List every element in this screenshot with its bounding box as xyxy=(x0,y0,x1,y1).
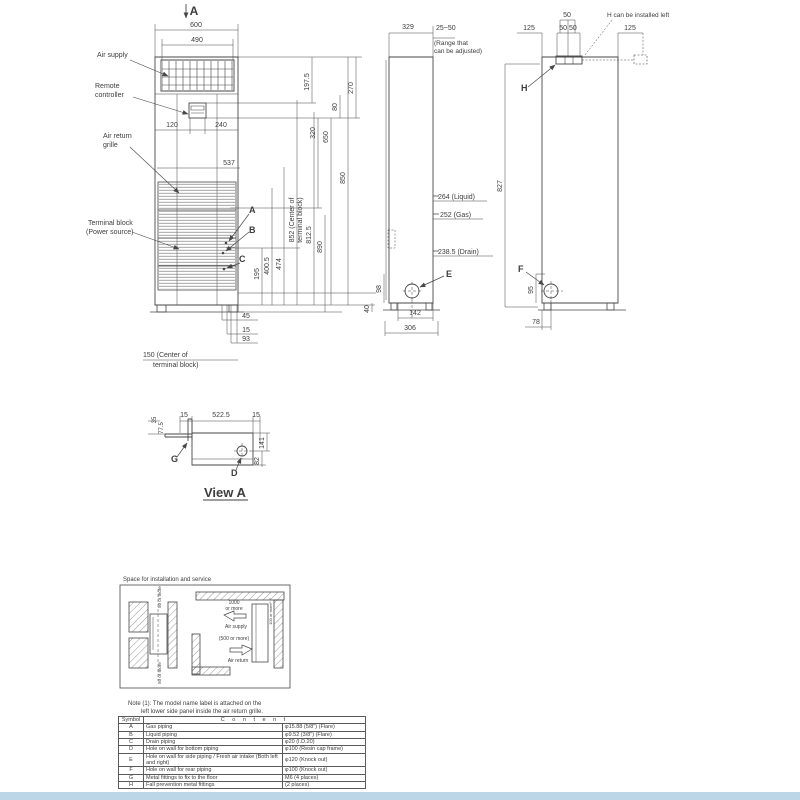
row-content: Drain piping xyxy=(144,738,283,745)
dim-label: 40 xyxy=(364,305,371,313)
clearance-label: (500 or more) xyxy=(219,636,250,642)
air-supply-flow-label: Air supply xyxy=(225,624,247,630)
air-return-flow-label: Air return xyxy=(228,658,249,664)
point-label-d: D xyxy=(231,468,238,478)
air-supply-label: Air supply xyxy=(97,52,128,59)
range-note: can be adjusted) xyxy=(434,48,482,55)
clearance-label: 50 or more xyxy=(157,662,162,684)
dim-label: 197.5 xyxy=(304,73,311,91)
note-line: Note (1): The model name label is attach… xyxy=(128,701,262,707)
liquid-pipe-label: 264 (Liquid) xyxy=(438,194,475,201)
terminal-block-label: (Power source) xyxy=(86,229,133,236)
table-row: A Gas piping φ15.88 (5/8") (Flare) xyxy=(119,724,366,731)
remote-controller-label: Remote xyxy=(95,83,120,90)
table-row: C Drain piping φ20 (I.D.20) xyxy=(119,738,366,745)
dim-label: 142 xyxy=(409,310,421,317)
dim-label: 82 xyxy=(254,457,261,465)
dim-label: 50 50 xyxy=(559,25,577,32)
row-value: φ100 (Resin cap frame) xyxy=(283,746,366,753)
section-arrow-label: A xyxy=(190,4,199,18)
dim-label: 490 xyxy=(191,37,203,44)
dim-label: 890 xyxy=(317,241,324,253)
dim-label: 850 xyxy=(340,172,347,184)
table-row: F Hole on wall for rear piping φ100 (Kno… xyxy=(119,767,366,774)
dim-label: 650 xyxy=(323,131,330,143)
dim-label: 98 xyxy=(376,285,383,293)
table-row: D Hole on wall for bottom piping φ100 (R… xyxy=(119,746,366,753)
installation-space-title: Space for installation and service xyxy=(123,577,212,583)
air-supply-arrow-icon xyxy=(224,611,246,621)
row-content: Hole on wall for bottom piping xyxy=(144,746,283,753)
dim-label: 15 xyxy=(180,412,188,419)
bottom-accent-bar xyxy=(0,792,800,800)
dim-label: 15 xyxy=(252,412,260,419)
table-header-content: C o n t e n t xyxy=(144,717,366,724)
row-content: Metal fittings to fix to the floor xyxy=(144,774,283,781)
table-row: E Hole on wall for side piping / Fresh a… xyxy=(119,753,366,767)
dim-label: 93 xyxy=(242,336,250,343)
dim-label: 25~50 xyxy=(436,25,456,32)
view-a-dimension-lines xyxy=(148,416,270,470)
side-view-labels: 329 25~50 (Range that can be adjusted) 2… xyxy=(376,24,482,332)
rear-view-labels: H can be installed left 125 50 50 50 125… xyxy=(497,12,669,326)
row-symbol: H xyxy=(119,781,144,788)
dim-label: 827 xyxy=(497,180,504,192)
table-header-row: Symbol C o n t e n t xyxy=(119,717,366,724)
air-return-grille-label: Air return xyxy=(103,133,132,140)
front-view-linework xyxy=(150,57,244,312)
row-content: Gas piping xyxy=(144,724,283,731)
dim-label: 80 xyxy=(332,103,339,111)
clearance-label: 100 or more xyxy=(268,602,273,624)
clearance-label: or more xyxy=(225,606,242,612)
point-label-c: C xyxy=(239,254,246,264)
row-symbol: C xyxy=(119,738,144,745)
drawing-page: A 600 490 Air supply Remote controller A… xyxy=(0,0,800,800)
dim-label: 270 xyxy=(348,82,355,94)
table-row: G Metal fittings to fix to the floor M6 … xyxy=(119,774,366,781)
view-a-title: View A xyxy=(204,485,247,500)
row-content: Fall prevention metal fittings xyxy=(144,781,283,788)
row-symbol: F xyxy=(119,767,144,774)
table-row: B Liquid piping φ9.52 (3/8") (Flare) xyxy=(119,731,366,738)
view-a-linework xyxy=(165,419,253,465)
point-label-b: B xyxy=(249,225,256,235)
symbol-content-table: Symbol C o n t e n t A Gas piping φ15.88… xyxy=(118,716,366,789)
air-return-grille-label: grille xyxy=(103,142,118,149)
dim-label: 600 xyxy=(190,22,202,29)
row-content: Hole on wall for rear piping xyxy=(144,767,283,774)
point-label-e: E xyxy=(446,269,452,279)
point-label-a: A xyxy=(249,205,256,215)
dim-label: 195 xyxy=(254,268,261,280)
dim-label: terminal block) xyxy=(153,362,199,369)
dim-label: 45 xyxy=(242,313,250,320)
row-value: φ20 (I.D.20) xyxy=(283,738,366,745)
row-content: Liquid piping xyxy=(144,731,283,738)
dim-label: 537 xyxy=(223,160,235,167)
dim-label: 125 xyxy=(523,25,535,32)
dim-label: 35 xyxy=(152,416,158,423)
dim-label: 15 xyxy=(242,327,250,334)
dim-label: 50 xyxy=(563,12,571,19)
terminal-block-label: Terminal block xyxy=(88,220,133,227)
dim-label: 320 xyxy=(310,127,317,139)
h-install-note: H can be installed left xyxy=(607,12,669,19)
row-content: Hole on wall for side piping / Fresh air… xyxy=(144,753,283,767)
dim-label: 125 xyxy=(624,25,636,32)
row-value: φ15.88 (5/8") (Flare) xyxy=(283,724,366,731)
row-value: (2 places) xyxy=(283,781,366,788)
point-label-h: H xyxy=(521,83,528,93)
row-symbol: D xyxy=(119,746,144,753)
drain-pipe-label: 238.5 (Drain) xyxy=(438,249,479,256)
remote-controller-label: controller xyxy=(95,92,124,99)
dim-label: 852 (Center of xyxy=(289,198,296,243)
row-symbol: A xyxy=(119,724,144,731)
dim-label: terminal block) xyxy=(297,197,304,243)
dim-label: 78 xyxy=(532,319,540,326)
dim-label: 522.5 xyxy=(212,412,230,419)
air-return-arrow-icon xyxy=(230,645,252,655)
row-value: φ120 (Knock out) xyxy=(283,753,366,767)
rear-view-dimension-lines xyxy=(505,20,643,330)
dim-label: 141 xyxy=(259,437,266,449)
note-text: Note (1): The model name label is attach… xyxy=(128,701,263,715)
row-symbol: G xyxy=(119,774,144,781)
view-a-labels: 15 522.5 15 35 77.5 G D 141 82 View A xyxy=(152,412,266,500)
dim-label: 120 xyxy=(166,122,178,129)
dim-label: 329 xyxy=(402,24,414,31)
dim-label: 306 xyxy=(404,325,416,332)
point-label-g: G xyxy=(171,454,178,464)
row-symbol: E xyxy=(119,753,144,767)
range-note: (Range that xyxy=(434,40,468,47)
rear-view-linework xyxy=(538,55,647,310)
dim-label: 812.5 xyxy=(306,226,313,244)
dim-label: 77.5 xyxy=(159,422,165,434)
installation-space-diagram xyxy=(120,585,290,688)
point-label-f: F xyxy=(518,264,524,274)
side-view-dimension-lines xyxy=(384,26,493,336)
clearance-label: 50 or more xyxy=(157,586,162,608)
technical-drawing-svg: A 600 490 Air supply Remote controller A… xyxy=(0,0,800,800)
row-value: φ100 (Knock out) xyxy=(283,767,366,774)
table-row: H Fall prevention metal fittings (2 plac… xyxy=(119,781,366,788)
note-line: left lower side panel inside the air ret… xyxy=(141,709,263,715)
dim-label: 150 (Center of xyxy=(143,352,188,359)
dim-label: 400.5 xyxy=(264,257,271,275)
gas-pipe-label: 252 (Gas) xyxy=(440,212,471,219)
dim-label: 95 xyxy=(528,286,535,294)
table-header-symbol: Symbol xyxy=(119,717,144,724)
dim-label: 474 xyxy=(276,258,283,270)
row-symbol: B xyxy=(119,731,144,738)
row-value: M6 (4 places) xyxy=(283,774,366,781)
side-view-linework xyxy=(383,57,440,318)
row-value: φ9.52 (3/8") (Flare) xyxy=(283,731,366,738)
dim-label: 240 xyxy=(215,122,227,129)
